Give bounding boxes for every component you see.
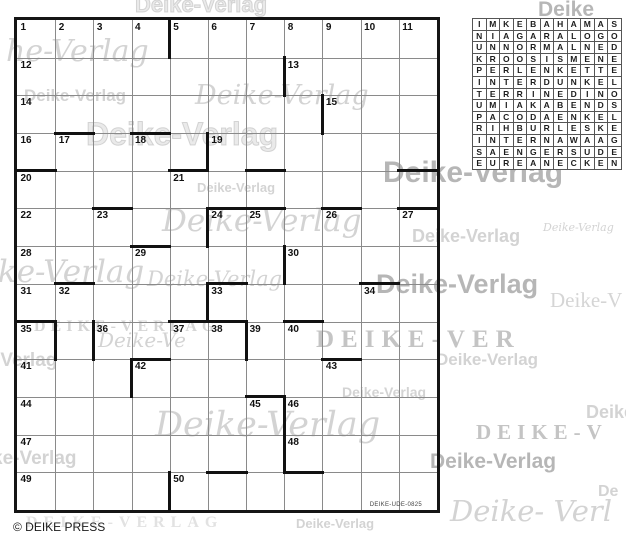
solution-cell-r9c9: K	[581, 112, 595, 124]
clue-number-3: 3	[97, 23, 103, 33]
solution-cell-r6c3: T	[500, 77, 514, 89]
grid-cell-r11c3[interactable]	[93, 397, 131, 435]
clue-number-33: 33	[211, 287, 222, 297]
solution-cell-r10c1: R	[473, 123, 487, 135]
clue-number-4: 4	[135, 23, 141, 33]
solution-cell-r6c1: I	[473, 77, 487, 89]
deike-watermark: Deike	[586, 402, 626, 423]
grid-cell-r4c3[interactable]	[93, 133, 131, 171]
solution-cell-r11c2: N	[487, 135, 501, 147]
clue-number-37: 37	[173, 325, 184, 335]
solution-cell-r2c6: R	[541, 31, 555, 43]
grid-cell-r2c11[interactable]	[399, 58, 437, 96]
solution-cell-r1c4: E	[514, 19, 528, 31]
grid-cell-r4c7[interactable]	[246, 133, 284, 171]
grid-cell-r11c2[interactable]	[55, 397, 93, 435]
word-divider-v	[321, 94, 324, 135]
clue-number-21: 21	[173, 174, 184, 184]
word-divider-v	[130, 358, 133, 399]
solution-cell-r12c11: E	[608, 147, 622, 159]
solution-cell-r3c8: L	[568, 42, 582, 54]
solution-cell-r1c9: M	[581, 19, 595, 31]
solution-cell-r5c5: E	[527, 65, 541, 77]
word-divider-v	[245, 320, 248, 361]
deike-watermark: Deike-Verlag	[296, 516, 374, 531]
solution-cell-r4c5: S	[527, 54, 541, 66]
clue-number-19: 19	[211, 136, 222, 146]
grid-cell-r2c2[interactable]	[55, 58, 93, 96]
grid-cell-r13c4[interactable]	[132, 472, 170, 510]
solution-cell-r9c1: P	[473, 112, 487, 124]
clue-number-26: 26	[326, 211, 337, 221]
grid-cell-r12c7[interactable]	[246, 435, 284, 473]
word-divider-v	[92, 320, 95, 361]
grid-cell-r7c9[interactable]	[322, 246, 360, 284]
grid-cell-r11c4[interactable]	[132, 397, 170, 435]
word-divider-v	[206, 207, 209, 248]
solution-cell-r4c8: M	[568, 54, 582, 66]
clue-number-11: 11	[402, 23, 413, 33]
grid-cell-r13c9[interactable]	[322, 472, 360, 510]
grid-cell-r5c8[interactable]	[284, 171, 322, 209]
grid-cell-r12c5[interactable]	[170, 435, 208, 473]
clue-number-38: 38	[211, 325, 222, 335]
clue-number-32: 32	[59, 287, 70, 297]
grid-cell-r12c2[interactable]	[55, 435, 93, 473]
clue-number-22: 22	[21, 211, 32, 221]
deike-watermark: DEIKE-V	[476, 420, 608, 445]
solution-cell-r11c3: T	[500, 135, 514, 147]
clue-number-18: 18	[135, 136, 146, 146]
deike-watermark: De	[598, 483, 618, 501]
solution-cell-r1c10: A	[595, 19, 609, 31]
solution-cell-r4c11: E	[608, 54, 622, 66]
solution-cell-r7c7: E	[554, 89, 568, 101]
solution-cell-r7c6: N	[541, 89, 555, 101]
solution-cell-r4c4: O	[514, 54, 528, 66]
grid-cell-r10c8[interactable]	[284, 359, 322, 397]
solution-cell-r2c10: G	[595, 31, 609, 43]
solution-cell-r9c6: A	[541, 112, 555, 124]
solution-cell-r2c5: A	[527, 31, 541, 43]
clue-number-44: 44	[21, 400, 32, 410]
word-divider-h	[283, 320, 324, 323]
grid-cell-r9c10[interactable]	[361, 322, 399, 360]
solution-cell-r5c8: E	[568, 65, 582, 77]
solution-cell-r3c9: N	[581, 42, 595, 54]
solution-cell-r12c10: D	[595, 147, 609, 159]
solution-cell-r12c4: N	[514, 147, 528, 159]
solution-cell-r5c1: P	[473, 65, 487, 77]
word-divider-h	[206, 282, 247, 285]
clue-number-34: 34	[364, 287, 375, 297]
solution-cell-r2c9: O	[581, 31, 595, 43]
grid-cell-r5c11[interactable]	[399, 171, 437, 209]
grid-cell-r6c4[interactable]	[132, 208, 170, 246]
clue-number-45: 45	[250, 400, 261, 410]
solution-cell-r7c3: R	[500, 89, 514, 101]
solution-cell-r12c1: S	[473, 147, 487, 159]
grid-cell-r8c7[interactable]	[246, 284, 284, 322]
clue-number-39: 39	[250, 325, 261, 335]
grid-cell-r3c2[interactable]	[55, 95, 93, 133]
solution-cell-r5c11: E	[608, 65, 622, 77]
clue-number-17: 17	[59, 136, 70, 146]
clue-number-25: 25	[250, 211, 261, 221]
deike-watermark: Deike-V	[550, 288, 622, 313]
solution-cell-r3c10: E	[595, 42, 609, 54]
grid-cell-r13c8[interactable]	[284, 472, 322, 510]
clue-number-6: 6	[211, 23, 217, 33]
solution-cell-r8c8: E	[568, 100, 582, 112]
solution-cell-r11c6: N	[541, 135, 555, 147]
deike-watermark: Deike-Verlag	[543, 221, 614, 234]
grid-cell-r7c10[interactable]	[361, 246, 399, 284]
solution-cell-r1c5: B	[527, 19, 541, 31]
grid-cell-r2c3[interactable]	[93, 58, 131, 96]
solution-cell-r2c3: A	[500, 31, 514, 43]
deike-watermark: Deike-Verlag	[436, 350, 538, 370]
grid-cell-r7c5[interactable]	[170, 246, 208, 284]
word-divider-h	[16, 320, 57, 323]
grid-cell-r6c10[interactable]	[361, 208, 399, 246]
grid-cell-r8c8[interactable]	[284, 284, 322, 322]
solution-cell-r3c4: O	[514, 42, 528, 54]
clue-number-9: 9	[326, 23, 332, 33]
solution-cell-r10c6: R	[541, 123, 555, 135]
solution-cell-r13c8: C	[568, 158, 582, 170]
grid-cell-r12c11[interactable]	[399, 435, 437, 473]
solution-cell-r10c5: U	[527, 123, 541, 135]
solution-cell-r13c2: U	[487, 158, 501, 170]
solution-cell-r11c9: A	[581, 135, 595, 147]
solution-cell-r1c6: A	[541, 19, 555, 31]
word-divider-v	[206, 282, 209, 323]
grid-cell-r12c4[interactable]	[132, 435, 170, 473]
solution-cell-r3c2: N	[487, 42, 501, 54]
grid-cell-r2c9[interactable]	[322, 58, 360, 96]
solution-cell-r11c8: W	[568, 135, 582, 147]
solution-cell-r8c5: K	[527, 100, 541, 112]
word-divider-h	[16, 169, 57, 172]
solution-cell-r4c10: N	[595, 54, 609, 66]
solution-cell-r5c2: E	[487, 65, 501, 77]
solution-cell-r7c10: N	[595, 89, 609, 101]
clue-number-1: 1	[21, 23, 27, 33]
solution-cell-r11c10: A	[595, 135, 609, 147]
solution-cell-r10c4: B	[514, 123, 528, 135]
grid-cell-r12c6[interactable]	[208, 435, 246, 473]
solution-cell-r3c1: U	[473, 42, 487, 54]
grid-cell-r4c11[interactable]	[399, 133, 437, 171]
solution-cell-r5c4: L	[514, 65, 528, 77]
grid-cell-r5c6[interactable]	[208, 171, 246, 209]
solution-cell-r6c6: D	[541, 77, 555, 89]
grid-cell-r5c4[interactable]	[132, 171, 170, 209]
solution-cell-r3c11: D	[608, 42, 622, 54]
solution-cell-r7c8: D	[568, 89, 582, 101]
solution-cell-r6c4: E	[514, 77, 528, 89]
solution-cell-r10c2: I	[487, 123, 501, 135]
solution-cell-r8c4: A	[514, 100, 528, 112]
grid-cell-r5c2[interactable]	[55, 171, 93, 209]
grid-cell-r3c3[interactable]	[93, 95, 131, 133]
grid-cell-r3c8[interactable]	[284, 95, 322, 133]
clue-number-5: 5	[173, 23, 179, 33]
solution-cell-r5c7: K	[554, 65, 568, 77]
word-divider-v	[168, 471, 171, 512]
solution-grid: IMKEBAHAMASNIAGARALOGOUNNORMALNEDKROOSIS…	[472, 18, 622, 170]
grid-cell-r7c11[interactable]	[399, 246, 437, 284]
grid-cell-r8c9[interactable]	[322, 284, 360, 322]
solution-cell-r6c9: K	[581, 77, 595, 89]
word-divider-v	[54, 320, 57, 361]
solution-cell-r3c5: R	[527, 42, 541, 54]
clue-number-46: 46	[288, 400, 299, 410]
grid-cell-r2c5[interactable]	[170, 58, 208, 96]
solution-cell-r10c9: S	[581, 123, 595, 135]
clue-number-27: 27	[402, 211, 413, 221]
solution-cell-r6c7: U	[554, 77, 568, 89]
grid-cell-r13c3[interactable]	[93, 472, 131, 510]
solution-cell-r2c7: A	[554, 31, 568, 43]
solution-cell-r4c3: O	[500, 54, 514, 66]
solution-cell-r13c10: E	[595, 158, 609, 170]
solution-cell-r10c11: E	[608, 123, 622, 135]
solution-cell-r2c1: N	[473, 31, 487, 43]
grid-cell-r11c6[interactable]	[208, 397, 246, 435]
grid-cell-r3c10[interactable]	[361, 95, 399, 133]
solution-cell-r12c2: A	[487, 147, 501, 159]
solution-cell-r12c7: R	[554, 147, 568, 159]
grid-cell-r10c7[interactable]	[246, 359, 284, 397]
clue-number-30: 30	[288, 249, 299, 259]
grid-cell-r7c2[interactable]	[55, 246, 93, 284]
solution-cell-r7c5: I	[527, 89, 541, 101]
solution-cell-r11c7: A	[554, 135, 568, 147]
clue-number-14: 14	[21, 98, 32, 108]
grid-cell-r2c6[interactable]	[208, 58, 246, 96]
grid-cell-r4c8[interactable]	[284, 133, 322, 171]
word-divider-h	[206, 320, 247, 323]
crossword-puzzle-page: Deike-VerlagDeikehe-VerlagDeike-VerlagDe…	[0, 0, 626, 548]
grid-cell-r13c2[interactable]	[55, 472, 93, 510]
solution-cell-r13c6: N	[541, 158, 555, 170]
grid-cell-r11c9[interactable]	[322, 397, 360, 435]
solution-cell-r6c11: L	[608, 77, 622, 89]
grid-cell-r2c7[interactable]	[246, 58, 284, 96]
grid-cell-r2c4[interactable]	[132, 58, 170, 96]
solution-cell-r1c1: I	[473, 19, 487, 31]
solution-cell-r8c2: M	[487, 100, 501, 112]
solution-cell-r9c3: C	[500, 112, 514, 124]
solution-cell-r10c3: H	[500, 123, 514, 135]
ref-code: DEIKE-UDE-0825	[370, 502, 422, 508]
solution-cell-r2c2: I	[487, 31, 501, 43]
word-divider-v	[283, 245, 286, 286]
grid-cell-r3c6[interactable]	[208, 95, 246, 133]
solution-cell-r3c7: A	[554, 42, 568, 54]
clue-number-28: 28	[21, 249, 32, 259]
grid-cell-r5c9[interactable]	[322, 171, 360, 209]
solution-cell-r8c1: U	[473, 100, 487, 112]
word-divider-h	[283, 471, 324, 474]
clue-number-36: 36	[97, 325, 108, 335]
clue-number-10: 10	[364, 23, 375, 33]
grid-cell-r2c10[interactable]	[361, 58, 399, 96]
grid-cell-r5c3[interactable]	[93, 171, 131, 209]
clue-number-16: 16	[21, 136, 32, 146]
clue-number-23: 23	[97, 211, 108, 221]
solution-cell-r2c4: G	[514, 31, 528, 43]
grid-cell-r12c3[interactable]	[93, 435, 131, 473]
grid-cell-r12c9[interactable]	[322, 435, 360, 473]
solution-cell-r8c9: N	[581, 100, 595, 112]
solution-cell-r11c5: R	[527, 135, 541, 147]
clue-number-15: 15	[326, 98, 337, 108]
solution-cell-r3c3: N	[500, 42, 514, 54]
grid-cell-r5c7[interactable]	[246, 171, 284, 209]
clue-number-12: 12	[21, 61, 32, 71]
solution-cell-r13c7: E	[554, 158, 568, 170]
solution-cell-r7c11: O	[608, 89, 622, 101]
grid-cell-r9c9[interactable]	[322, 322, 360, 360]
solution-cell-r11c1: I	[473, 135, 487, 147]
solution-cell-r5c3: R	[500, 65, 514, 77]
grid-cell-r10c10[interactable]	[361, 359, 399, 397]
copyright-label: © DEIKE PRESS	[13, 520, 105, 534]
clue-number-49: 49	[21, 475, 32, 485]
clue-number-47: 47	[21, 438, 32, 448]
grid-cell-r4c10[interactable]	[361, 133, 399, 171]
solution-cell-r8c3: I	[500, 100, 514, 112]
clue-number-50: 50	[173, 475, 184, 485]
grid-cell-r3c11[interactable]	[399, 95, 437, 133]
grid-cell-r8c5[interactable]	[170, 284, 208, 322]
solution-cell-r9c5: D	[527, 112, 541, 124]
grid-cell-r6c2[interactable]	[55, 208, 93, 246]
grid-cell-r11c11[interactable]	[399, 397, 437, 435]
solution-cell-r13c5: A	[527, 158, 541, 170]
word-divider-v	[168, 19, 171, 60]
deike-watermark: Deike- Verl	[450, 494, 612, 528]
clue-number-48: 48	[288, 438, 299, 448]
grid-cell-r11c5[interactable]	[170, 397, 208, 435]
grid-cell-r13c7[interactable]	[246, 472, 284, 510]
solution-cell-r6c5: R	[527, 77, 541, 89]
solution-cell-r13c11: N	[608, 158, 622, 170]
word-divider-h	[168, 169, 209, 172]
grid-cell-r8c11[interactable]	[399, 284, 437, 322]
word-divider-h	[397, 169, 438, 172]
solution-cell-r4c6: I	[541, 54, 555, 66]
solution-cell-r3c6: M	[541, 42, 555, 54]
clue-number-42: 42	[135, 362, 146, 372]
solution-cell-r9c2: A	[487, 112, 501, 124]
grid-cell-r10c3[interactable]	[93, 359, 131, 397]
solution-cell-r12c6: E	[541, 147, 555, 159]
grid-cell-r3c4[interactable]	[132, 95, 170, 133]
solution-cell-r7c2: E	[487, 89, 501, 101]
grid-cell-r8c4[interactable]	[132, 284, 170, 322]
deike-watermark: Deike-Verlag	[135, 0, 267, 18]
solution-cell-r7c4: R	[514, 89, 528, 101]
solution-cell-r10c8: E	[568, 123, 582, 135]
grid-cell-r12c10[interactable]	[361, 435, 399, 473]
word-divider-h	[168, 320, 209, 323]
grid-cell-r4c9[interactable]	[322, 133, 360, 171]
clue-number-29: 29	[135, 249, 146, 259]
clue-number-20: 20	[21, 174, 32, 184]
grid-cell-r7c3[interactable]	[93, 246, 131, 284]
solution-cell-r9c10: E	[595, 112, 609, 124]
solution-cell-r9c11: L	[608, 112, 622, 124]
grid-cell-r8c3[interactable]	[93, 284, 131, 322]
grid-cell-r10c5[interactable]	[170, 359, 208, 397]
grid-cell-r3c5[interactable]	[170, 95, 208, 133]
word-divider-h	[245, 169, 286, 172]
solution-cell-r4c7: S	[554, 54, 568, 66]
solution-cell-r8c7: B	[554, 100, 568, 112]
clue-number-2: 2	[59, 23, 65, 33]
clue-number-24: 24	[211, 211, 222, 221]
solution-cell-r1c11: S	[608, 19, 622, 31]
deike-watermark: Deike-Verlag	[430, 450, 556, 474]
solution-cell-r4c2: R	[487, 54, 501, 66]
solution-cell-r12c3: E	[500, 147, 514, 159]
solution-cell-r6c8: N	[568, 77, 582, 89]
grid-cell-r10c11[interactable]	[399, 359, 437, 397]
grid-cell-r11c10[interactable]	[361, 397, 399, 435]
grid-cell-r5c10[interactable]	[361, 171, 399, 209]
grid-cell-r3c7[interactable]	[246, 95, 284, 133]
word-divider-h	[54, 282, 95, 285]
solution-cell-r11c4: E	[514, 135, 528, 147]
word-divider-v	[283, 433, 286, 474]
grid-cell-r10c2[interactable]	[55, 359, 93, 397]
grid-cell-r10c6[interactable]	[208, 359, 246, 397]
grid-cell-r9c4[interactable]	[132, 322, 170, 360]
clue-number-41: 41	[21, 362, 32, 372]
word-divider-v	[283, 395, 286, 436]
clue-number-35: 35	[21, 325, 32, 335]
solution-cell-r6c2: N	[487, 77, 501, 89]
solution-cell-r9c7: E	[554, 112, 568, 124]
solution-cell-r6c10: E	[595, 77, 609, 89]
solution-cell-r2c11: O	[608, 31, 622, 43]
solution-cell-r5c6: N	[541, 65, 555, 77]
solution-cell-r9c8: N	[568, 112, 582, 124]
grid-cell-r4c5[interactable]	[170, 133, 208, 171]
clue-number-8: 8	[288, 23, 294, 33]
crossword-grid: DEIKE-UDE-0825 1234567891011121314151617…	[14, 17, 440, 513]
solution-cell-r10c7: L	[554, 123, 568, 135]
grid-cell-r6c5[interactable]	[170, 208, 208, 246]
solution-cell-r7c1: T	[473, 89, 487, 101]
grid-cell-r13c6[interactable]	[208, 472, 246, 510]
grid-cell-r7c7[interactable]	[246, 246, 284, 284]
clue-number-7: 7	[250, 23, 256, 33]
solution-cell-r10c10: K	[595, 123, 609, 135]
grid-cell-r9c11[interactable]	[399, 322, 437, 360]
grid-cell-r7c6[interactable]	[208, 246, 246, 284]
clue-number-40: 40	[288, 325, 299, 335]
solution-cell-r12c9: U	[581, 147, 595, 159]
grid-cell-r6c8[interactable]	[284, 208, 322, 246]
grid-cell-r9c2[interactable]	[55, 322, 93, 360]
solution-cell-r4c9: E	[581, 54, 595, 66]
solution-cell-r5c9: T	[581, 65, 595, 77]
